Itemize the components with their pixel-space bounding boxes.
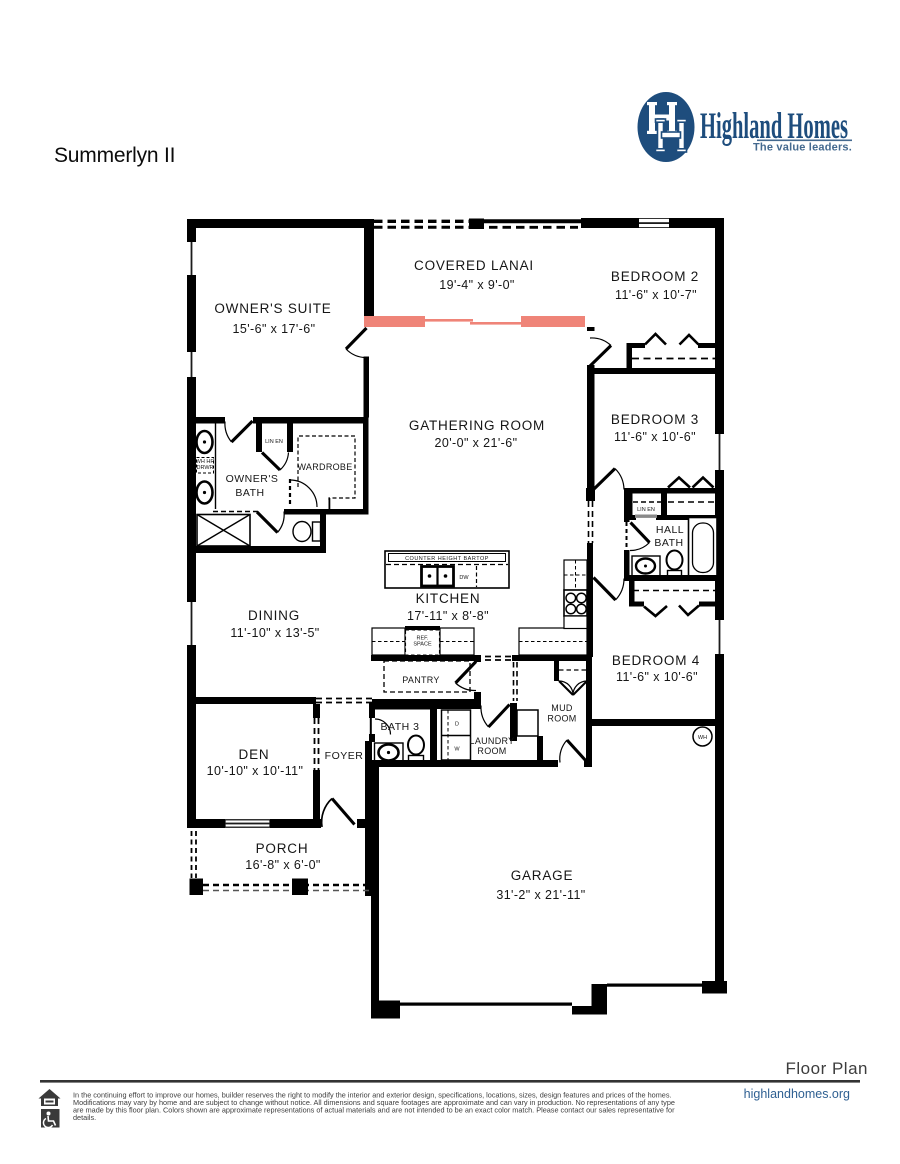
svg-text:KITCHEN: KITCHEN	[416, 591, 481, 606]
svg-text:are made by this floor plan. C: are made by this floor plan. Colors show…	[73, 1106, 675, 1115]
svg-text:10'-10" x 10'-11": 10'-10" x 10'-11"	[207, 764, 304, 778]
svg-text:ROOM: ROOM	[547, 714, 576, 724]
svg-text:11'-6" x 10'-6": 11'-6" x 10'-6"	[614, 430, 696, 444]
svg-text:LAUNDRY: LAUNDRY	[470, 736, 515, 746]
svg-text:COUNTER HEIGHT BARTOP: COUNTER HEIGHT BARTOP	[405, 556, 489, 562]
svg-text:OWNER'S SUITE: OWNER'S SUITE	[214, 301, 331, 316]
svg-text:SPACE: SPACE	[413, 642, 432, 648]
svg-text:20'-0" x 21'-6": 20'-0" x 21'-6"	[435, 436, 518, 450]
svg-text:LIN EN: LIN EN	[637, 507, 655, 513]
svg-text:D: D	[455, 722, 459, 728]
svg-text:BEDROOM 2: BEDROOM 2	[611, 269, 699, 284]
svg-text:BEDROOM 4: BEDROOM 4	[612, 653, 700, 668]
svg-text:11'-6" x 10'-7": 11'-6" x 10'-7"	[615, 288, 697, 302]
svg-text:WARDROBE: WARDROBE	[297, 462, 352, 472]
svg-text:GATHERING ROOM: GATHERING ROOM	[409, 418, 545, 433]
svg-text:DEN: DEN	[239, 747, 270, 762]
svg-text:ROOM: ROOM	[477, 746, 506, 756]
svg-text:WH: WH	[698, 735, 707, 741]
svg-text:11'-6" x 10'-6": 11'-6" x 10'-6"	[616, 670, 698, 684]
svg-text:31'-2" x 21'-11": 31'-2" x 21'-11"	[496, 888, 585, 902]
svg-text:BATH 3: BATH 3	[381, 721, 420, 733]
svg-text:highlandhomes.org: highlandhomes.org	[744, 1087, 850, 1101]
svg-text:PORCH: PORCH	[256, 841, 309, 856]
svg-text:COVERED LANAI: COVERED LANAI	[414, 258, 534, 273]
svg-text:details.: details.	[73, 1113, 96, 1122]
svg-text:BATH: BATH	[235, 487, 264, 499]
svg-text:16'-8" x 6'-0": 16'-8" x 6'-0"	[245, 858, 321, 872]
svg-text:DW: DW	[459, 575, 469, 581]
svg-text:FOYER: FOYER	[325, 750, 364, 762]
svg-text:BATH: BATH	[654, 537, 683, 549]
svg-text:BEDROOM 3: BEDROOM 3	[611, 412, 699, 427]
svg-text:W: W	[454, 747, 460, 753]
svg-text:OWNER'S: OWNER'S	[226, 473, 279, 485]
svg-text:LIN EN: LIN EN	[265, 439, 283, 445]
svg-text:PANTRY: PANTRY	[402, 675, 439, 685]
svg-text:The value leaders.: The value leaders.	[753, 142, 852, 154]
svg-text:15'-6" x 17'-6": 15'-6" x 17'-6"	[233, 322, 316, 336]
svg-text:11'-10" x 13'-5": 11'-10" x 13'-5"	[230, 626, 319, 640]
svg-text:19'-4" x 9'-0": 19'-4" x 9'-0"	[439, 278, 515, 292]
svg-text:DINING: DINING	[248, 608, 300, 623]
svg-text:17'-11" x 8'-8": 17'-11" x 8'-8"	[407, 609, 489, 623]
svg-text:MUD: MUD	[551, 703, 573, 713]
svg-text:Floor Plan: Floor Plan	[786, 1059, 868, 1078]
svg-text:HALL: HALL	[656, 524, 684, 536]
svg-text:DRWR: DRWR	[196, 465, 213, 471]
svg-text:Summerlyn II: Summerlyn II	[54, 144, 175, 167]
svg-text:GARAGE: GARAGE	[511, 868, 574, 883]
